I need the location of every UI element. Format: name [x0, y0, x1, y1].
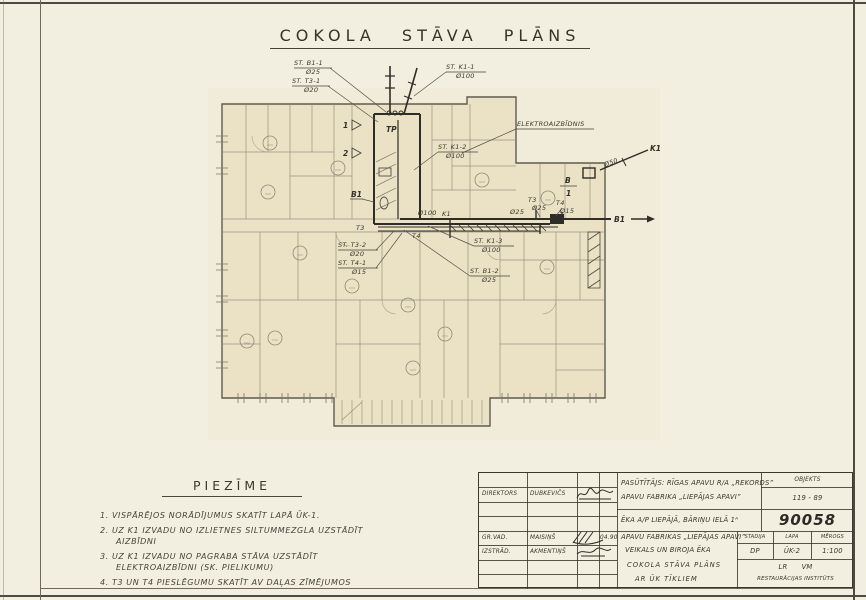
stack-label-t3-1: ST. T3-1: [292, 77, 320, 85]
building-address: ĒKA A/P LIEPĀJĀ, BĀRIŅU IELĀ 1ᴬ: [621, 516, 738, 524]
col-merogs: MĒROGS: [811, 534, 854, 540]
stack-size-k1-3: Ø100: [481, 246, 501, 254]
notes-block: PIEZĪME 1. VISPĀRĒJOS NORĀDĪJUMUS SKATĪT…: [100, 478, 485, 587]
t4-valve-label: T4: [556, 199, 565, 207]
person-name-direktors: DUBKEVIČS: [530, 491, 565, 497]
stack-label-b1-2: ST. B1-2: [470, 267, 499, 275]
notes-heading: PIEZĪME: [162, 478, 302, 497]
stack-label-k1-2: ST. K1-2: [438, 143, 467, 151]
org-line2: RESTAURĀCIJAS INSTITŪTS: [737, 576, 854, 582]
note-line-1: 1. VISPĀRĒJOS NORĀDĪJUMUS SKATĪT LAPĀ ŪK…: [100, 511, 485, 520]
stack-size-t3-1: Ø20: [303, 86, 318, 94]
val-lapa: ŪK-2: [773, 547, 811, 555]
note-line-2: 2. UZ K1 IZVADU NO IZLIETNES SILTUMMEZGL…: [100, 526, 485, 535]
stack-label-b1-1: ST. B1-1: [294, 59, 323, 67]
org-line1: LR VM: [737, 563, 854, 571]
note-line-3b: ELEKTROAIZBĪDNI (SK. PIELIKUMU): [116, 563, 485, 572]
val-stadija: DP: [737, 547, 773, 555]
stack-size-k1-2: Ø100: [445, 152, 465, 160]
stamp-title-line3: COKOLA STĀVA PLĀNS: [627, 561, 721, 569]
t4-valve-size: Ø15: [559, 207, 574, 215]
t3-valve-label: T3: [528, 196, 537, 204]
object-label: OBJEKTS: [761, 477, 854, 483]
stack-size-t3-2: Ø20: [349, 250, 364, 258]
section-b-number: 1: [566, 189, 571, 198]
stack-size-b1-2: Ø25: [481, 276, 496, 284]
person-role-grvad: GR.VAD.: [482, 535, 508, 541]
tp-label: TP: [386, 125, 397, 134]
person-name-izstrad: AKMENTIŅŠ: [530, 549, 566, 555]
val-merogs: 1:100: [811, 547, 854, 555]
d25-valve-label: Ø25: [509, 208, 524, 216]
signature-direktors: [575, 486, 615, 502]
valve-symbol: [550, 214, 564, 224]
stack-label-k1-3: ST. K1-3: [474, 237, 503, 245]
client-line2: APAVU FABRIKA „LIEPĀJAS APAVI”: [621, 493, 741, 501]
stamp-title-line1: APAVU FABRIKAS „LIEPĀJAS APAVI”: [621, 533, 745, 541]
stack-size-t4-1: Ø15: [351, 268, 366, 276]
section-b-label: B: [565, 176, 571, 185]
t4-below-label: T4: [412, 232, 421, 240]
client-line1: PASŪTĪTĀJS: RĪGAS APAVU R/A „REKORDS”: [621, 479, 773, 487]
col-lapa: LAPA: [773, 534, 811, 540]
k1-run-label: K1: [442, 210, 451, 218]
b1-shaft-label: B1: [351, 190, 362, 199]
note-line-2b: AIZBĪDNI: [116, 537, 485, 546]
stamp-title-line2: VEIKALS UN BIROJA ĒKA: [625, 546, 711, 554]
signature-grvad: [571, 530, 605, 545]
stamp-title-line4: AR ŪK TĪKLIEM: [635, 575, 698, 583]
signature-izstrad: [575, 545, 613, 558]
object-number: 119 - 89: [761, 494, 854, 502]
section-marker-2: 2: [343, 149, 348, 158]
b1-right-label: B1: [614, 215, 625, 224]
stack-label-t4-1: ST. T4-1: [338, 259, 366, 267]
t3-below-label: T3: [356, 224, 365, 232]
title-block: DIREKTORS DUBKEVIČS GR.VAD. MAISIŅŠ 04.9…: [478, 472, 853, 588]
col-stadija: STADIJA: [737, 534, 773, 540]
project-code: 90058: [761, 511, 854, 529]
person-role-direktors: DIREKTORS: [482, 491, 517, 497]
note-line-4: 4. T3 UN T4 PIESLĒGUMU SKATĪT AV DAĻAS Z…: [100, 578, 485, 587]
k1-topright-label: K1: [650, 144, 661, 153]
t3-valve-size: Ø25: [531, 204, 546, 212]
note-line-3: 3. UZ K1 IZVADU NO PAGRABA STĀVA UZSTĀDĪ…: [100, 552, 485, 561]
stack-label-k1-1: ST. K1-1: [446, 63, 475, 71]
elektro-label: ELEKTROAIZBĪDNIS: [517, 119, 585, 128]
drawing-sheet: { "sheet": { "title": "COKOLA STĀVA PLĀN…: [0, 0, 866, 600]
stack-label-t3-2: ST. T3-2: [338, 241, 366, 249]
person-role-izstrad: IZSTRĀD.: [482, 549, 511, 555]
d100-run-label: Ø100: [417, 209, 437, 217]
stack-size-b1-1: Ø25: [305, 68, 320, 76]
person-name-grvad: MAISIŅŠ: [530, 535, 555, 541]
section-marker-1: 1: [343, 121, 348, 130]
stack-size-k1-1: Ø100: [455, 72, 475, 80]
